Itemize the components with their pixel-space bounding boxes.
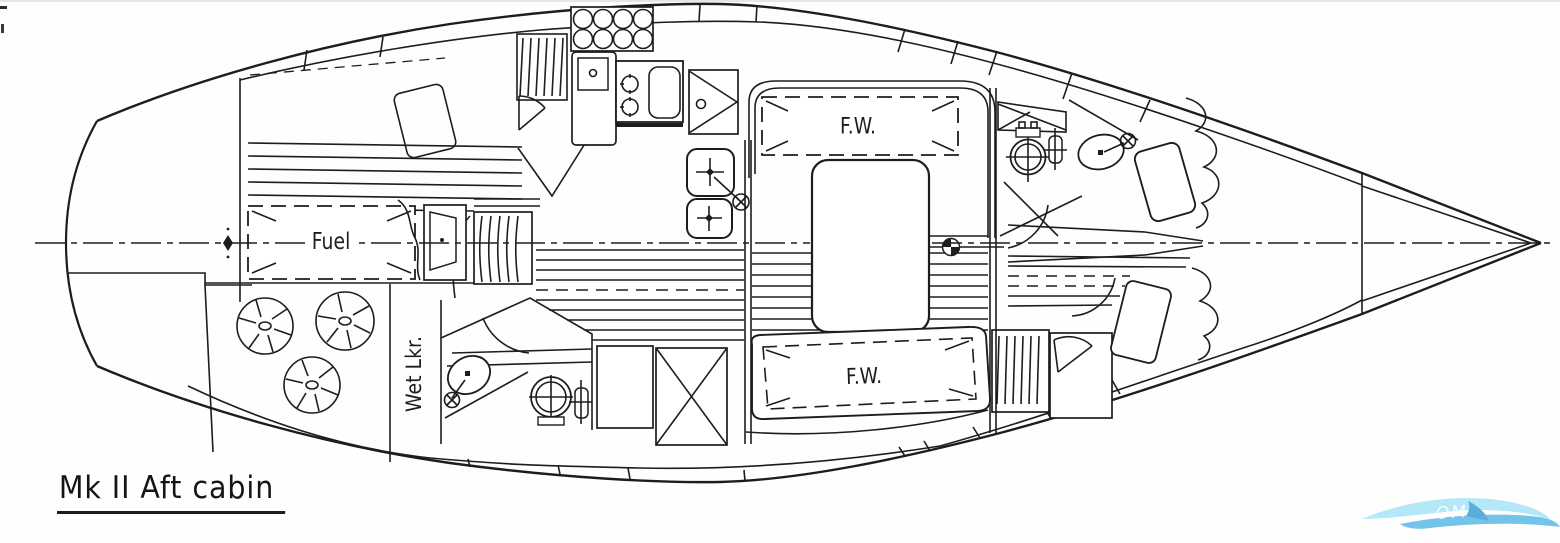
wet-locker-label: Wet Lkr. — [402, 336, 426, 412]
watermark-text: OM — [1435, 502, 1468, 524]
fuel-tank-and-engine — [248, 199, 540, 284]
saloon-table — [812, 160, 929, 332]
forward-head-pump — [1044, 128, 1067, 170]
plan-title: Mk II Aft cabin — [57, 470, 285, 514]
forward-section — [990, 88, 1531, 433]
vberth-pillow-upper — [1133, 141, 1197, 223]
boat-plan-drawing — [0, 0, 1560, 543]
fuel-tank-label: Fuel — [305, 229, 357, 255]
fresh-water-lower-label: F.W. — [846, 364, 883, 390]
aft-head-toilet — [529, 375, 573, 425]
scan-artifacts — [0, 0, 1560, 33]
galley-double-sink — [687, 149, 749, 238]
fresh-water-upper-label: F.W. — [840, 115, 876, 140]
datum-mark — [943, 239, 960, 256]
aft-head-sink — [441, 348, 497, 407]
boat-deck-plan-page: Fuel F.W. F.W. Wet Lkr. Mk II Aft cabin … — [0, 0, 1560, 543]
lazarette-coils — [237, 292, 374, 413]
forward-head-sink — [1075, 130, 1136, 174]
aft-head-pump — [569, 380, 592, 424]
